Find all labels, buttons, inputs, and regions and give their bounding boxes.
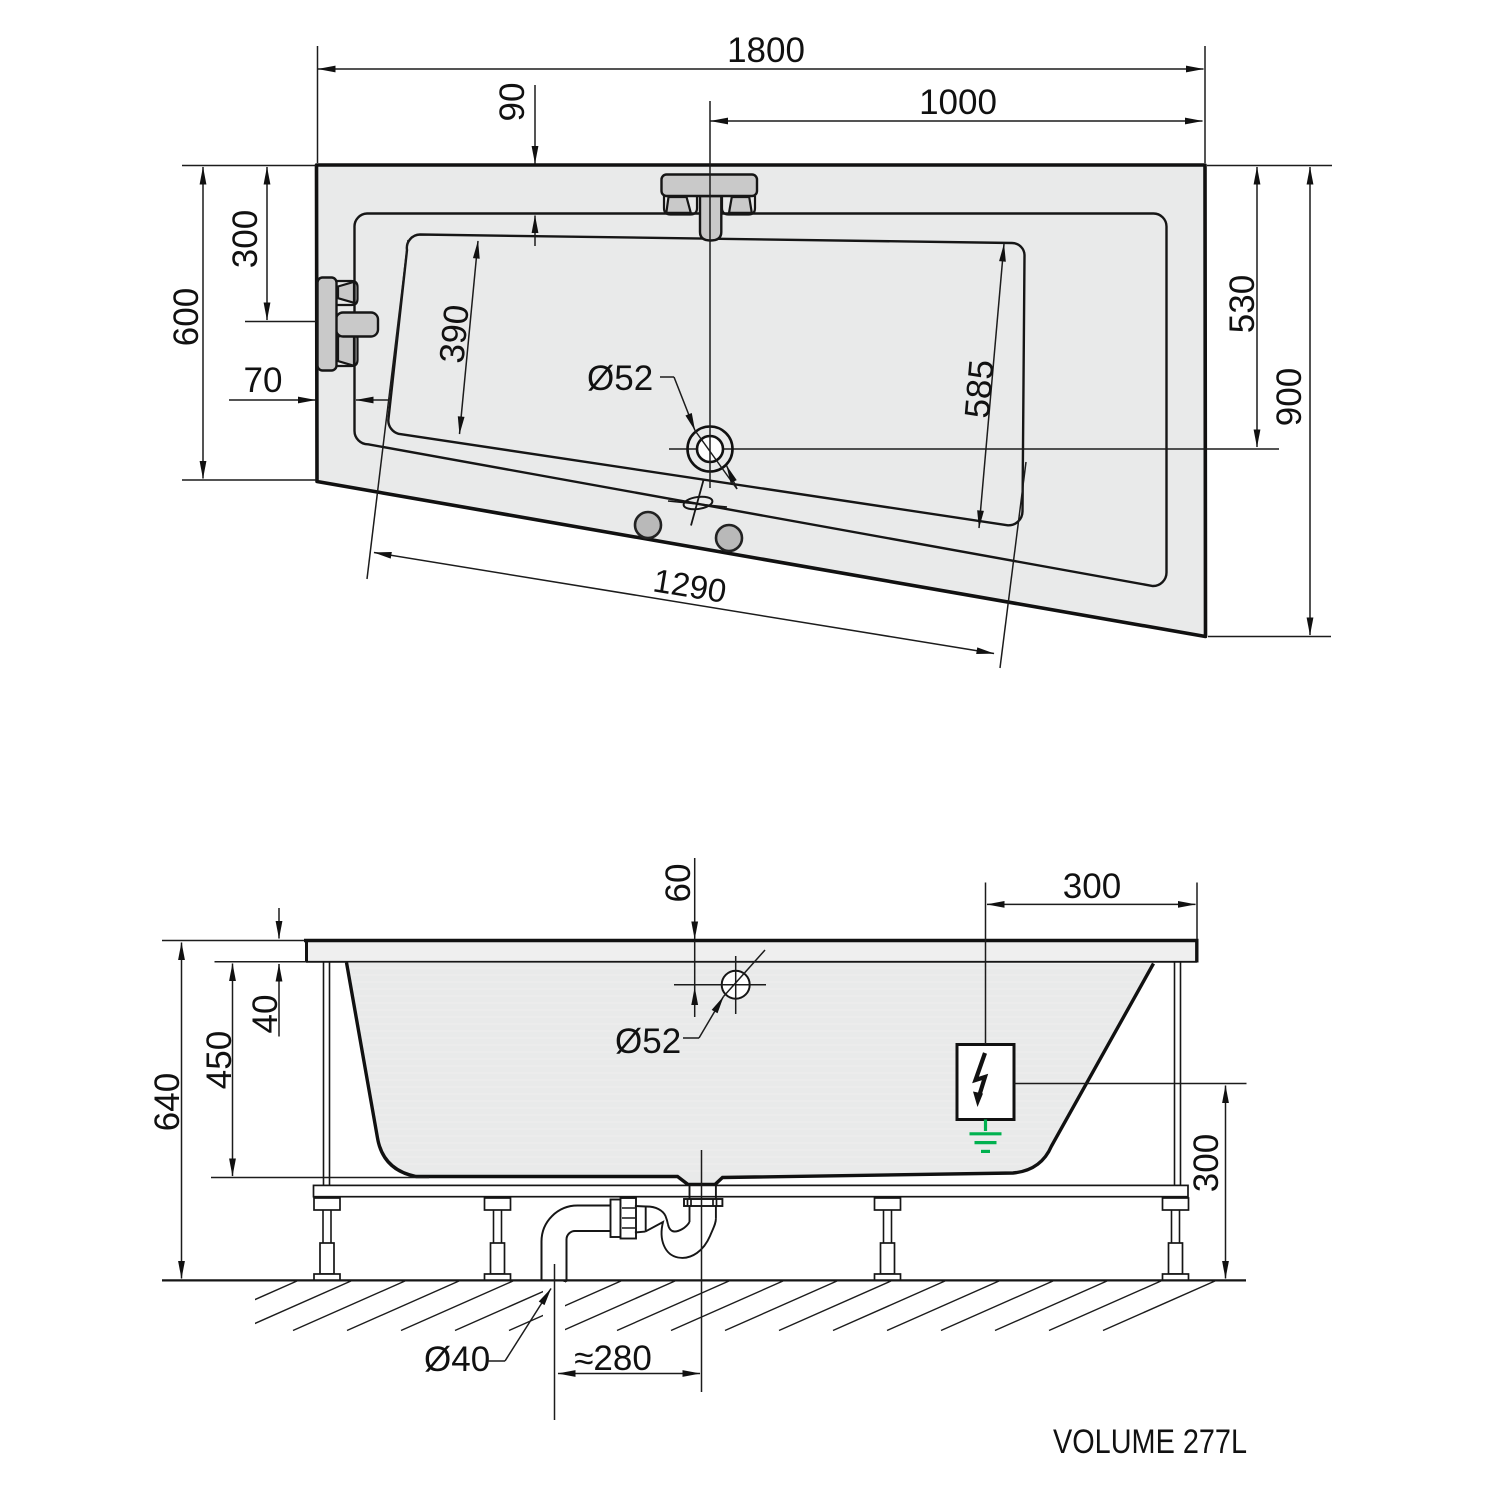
svg-text:60: 60: [659, 864, 698, 903]
svg-text:1000: 1000: [919, 83, 997, 122]
svg-text:40: 40: [246, 995, 285, 1034]
svg-text:600: 600: [167, 288, 206, 346]
svg-text:900: 900: [1270, 368, 1309, 426]
svg-text:Ø52: Ø52: [615, 1022, 681, 1061]
svg-text:90: 90: [493, 83, 532, 122]
svg-text:70: 70: [244, 361, 283, 400]
svg-text:300: 300: [1187, 1134, 1226, 1192]
svg-text:530: 530: [1223, 275, 1262, 333]
svg-text:1800: 1800: [727, 31, 805, 70]
svg-text:1290: 1290: [651, 561, 729, 609]
svg-text:VOLUME 277L: VOLUME 277L: [1053, 1423, 1247, 1461]
svg-text:Ø52: Ø52: [587, 359, 653, 398]
svg-text:300: 300: [226, 210, 265, 268]
svg-text:Ø40: Ø40: [424, 1340, 490, 1379]
svg-text:390: 390: [432, 303, 476, 365]
svg-text:640: 640: [148, 1073, 187, 1131]
svg-text:585: 585: [958, 358, 1002, 420]
svg-text:450: 450: [200, 1031, 239, 1089]
svg-text:300: 300: [1063, 867, 1121, 906]
svg-text:≈280: ≈280: [574, 1339, 652, 1378]
